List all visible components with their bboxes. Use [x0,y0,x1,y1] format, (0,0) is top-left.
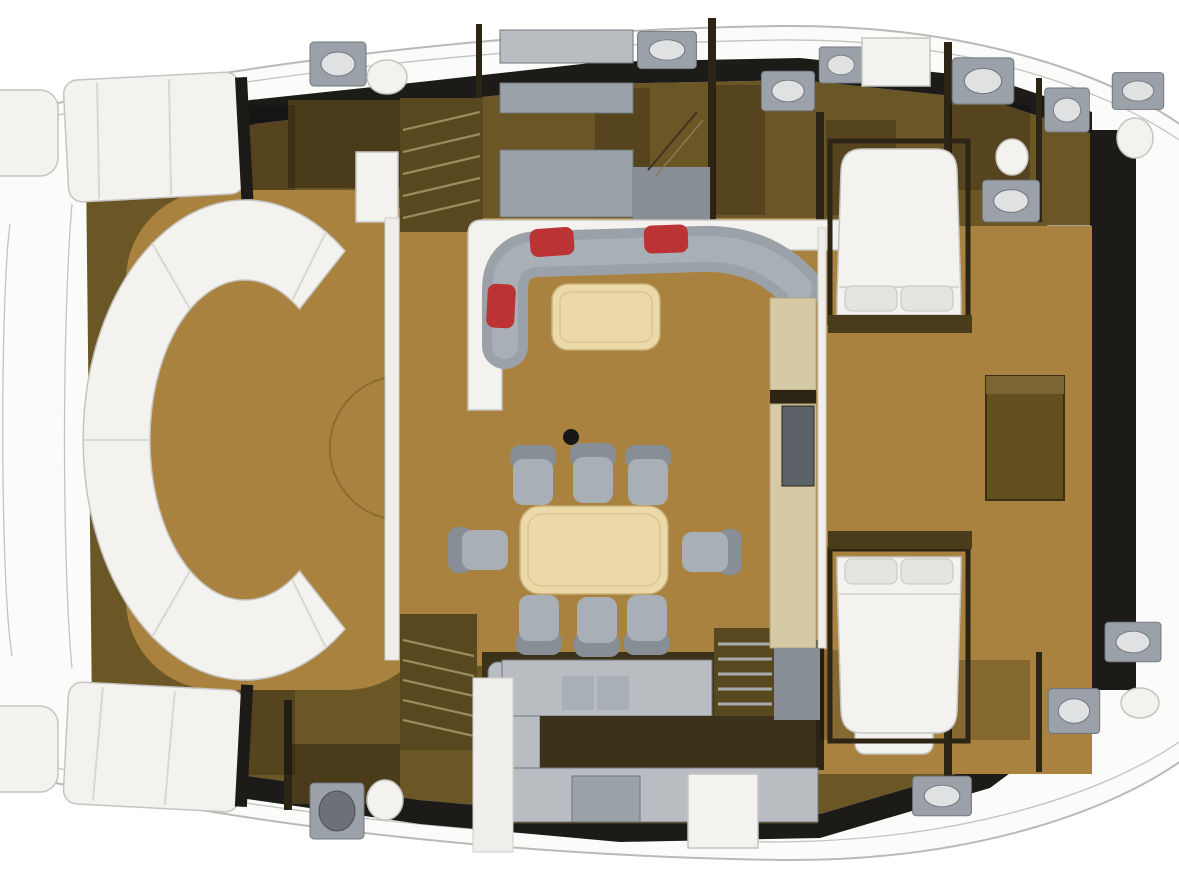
dining-chair [510,445,556,505]
galley-cabinet [500,30,633,63]
master-cabin [828,141,972,333]
stairway-lower-left [400,614,477,750]
deck-plan-svg [0,0,1179,881]
walkway-band-right [1090,130,1136,690]
doorway-gap [770,390,816,404]
stove [572,776,640,822]
dining-chair [570,443,616,503]
wash-basin [1048,689,1100,734]
pillow [901,286,953,311]
wash-basin [1045,88,1090,132]
cabin-shade [715,85,765,215]
galley-sink [562,676,594,710]
toilet [1117,118,1153,158]
galley-counter-bottom [488,768,818,822]
wash-basin [638,31,697,68]
wall-cream-upper [770,298,816,390]
desk [986,376,1064,500]
desk-area [986,376,1064,500]
dining-table [520,506,668,594]
red-cushion [644,224,689,254]
companionway-door [473,678,513,852]
galley-walkway [540,716,816,768]
fridge-door [688,774,758,848]
wash-basin [1105,622,1161,662]
galley-cabinet-right [774,648,820,720]
bow-platform-upper [0,90,58,176]
red-cushion [486,283,516,328]
dining-chair [448,527,508,573]
wash-basin [310,42,366,86]
toilet [367,780,403,820]
dining-chair [682,529,742,575]
wash-basin [913,776,972,816]
stairway-upper-left [400,98,483,232]
ceiling-post [563,429,579,445]
dining-chair [625,445,671,505]
cabin-shade [950,660,1030,740]
salon-left-wall [385,218,399,660]
desk-top [986,376,1064,394]
galley-cabinet [500,83,633,113]
dining-chair [574,597,620,657]
wash-basin [1112,73,1164,110]
wall-edge-white [818,228,826,648]
wash-basin [952,58,1014,104]
wardrobe [500,150,633,217]
pillow [845,559,897,584]
bed-foot-floor [828,315,972,333]
floor-plan [0,0,1179,881]
stairway-mid-right [714,628,776,722]
bulkhead [1036,652,1042,772]
dining-chair [516,595,562,655]
sun-pad-upper [63,71,245,202]
galley-sink [597,676,629,710]
dining-chair [624,595,670,655]
bulkhead [816,112,824,228]
bow-platform-lower [0,706,58,792]
washer [310,783,364,839]
coffee-table [552,284,660,350]
sun-pad-lower [63,681,245,812]
cabinet-white [356,152,398,222]
bed-head-floor [828,531,972,549]
tv-cabinet [782,406,814,486]
toilet [367,60,407,94]
red-cushion [529,226,575,257]
guest-cabin [828,531,972,741]
cabinet-block [633,167,710,220]
wash-basin [819,47,863,83]
toilet [1121,688,1159,718]
pillow [901,559,953,584]
cabinet-white [862,38,930,86]
toilet [996,139,1028,175]
pillow [845,286,897,311]
wash-basin [761,71,814,111]
vanity-basin [982,180,1039,222]
